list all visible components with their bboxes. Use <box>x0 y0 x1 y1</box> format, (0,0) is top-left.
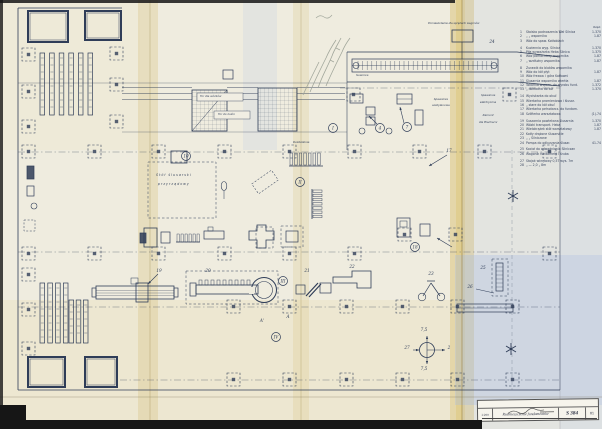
rack-strip <box>40 283 45 343</box>
label-track-2: Tor do kuźni <box>218 113 235 116</box>
scan-edge-left <box>0 0 3 410</box>
legend-row: 24Pompa do odkurzania ślusar.41-74 <box>520 141 601 145</box>
column-core <box>288 150 291 153</box>
column-core <box>418 150 421 153</box>
label-compressor-room: Pomieszczenie dla sprężarki wagonów <box>428 22 479 25</box>
legend-row: 18Szlifierka warsztatowa(1)-74 <box>520 112 601 116</box>
column-core <box>27 150 30 153</box>
column-core <box>27 90 30 93</box>
column-core <box>456 378 459 381</box>
column-core <box>232 378 235 381</box>
weld2-line4: dla Blacharni <box>479 120 497 124</box>
item-number-label: 24 <box>488 39 495 44</box>
label-welding-acetylene: Spawalnia acetylenowa <box>432 96 450 108</box>
scan-strip-bottom <box>24 420 482 429</box>
column-core <box>353 150 356 153</box>
column-core <box>27 53 30 56</box>
label-crane: Suwnica <box>356 74 368 78</box>
column-core <box>456 305 459 308</box>
legend-row: 3Wóz do spaw. Kotłoblach <box>520 39 601 43</box>
column-core <box>223 252 226 255</box>
column-core <box>483 150 486 153</box>
item-number-label: 27 <box>403 345 410 350</box>
column-core <box>508 93 511 96</box>
rack-strip <box>63 283 68 343</box>
machine-symbols-middle <box>24 151 452 248</box>
legend-item-text: „ wzdłużny wspornika <box>526 59 589 63</box>
legend-item-code <box>589 39 601 43</box>
label-switch-room: Rozdzielnia <box>293 141 309 145</box>
legend-header: Rzęd. <box>520 25 601 29</box>
circled-marker-label: 18 <box>412 245 418 250</box>
legend-item-code: 41-74 <box>589 141 601 145</box>
legend-item-text: Szlifierka warsztatowa <box>526 112 589 116</box>
title-block-signature <box>478 399 598 408</box>
equipment-markers: IIIIIIIV47101824192021222325262727,57,51… <box>156 39 495 371</box>
label-track-1: Tor dla wózków <box>200 95 221 98</box>
scan-edge-top <box>0 0 455 3</box>
rack-strip <box>83 300 88 343</box>
column-core <box>115 120 118 123</box>
column-core <box>157 252 160 255</box>
column-core <box>288 378 291 381</box>
column-core <box>288 252 291 255</box>
column-core <box>27 347 30 350</box>
weld2-line3: Remont <box>483 113 494 117</box>
loading-platforms <box>122 70 345 131</box>
column-core <box>511 305 514 308</box>
scanned-drawing-sheet: IIIIIIIV47101824192021222325262727,57,51… <box>0 0 602 429</box>
column-core <box>93 150 96 153</box>
column-core <box>548 252 551 255</box>
rack-strip <box>69 53 74 115</box>
column-core <box>345 378 348 381</box>
machine-symbols-top <box>350 94 423 134</box>
column-core <box>454 233 457 236</box>
column-core <box>345 305 348 308</box>
scan-line-under-title <box>482 418 597 419</box>
column-core <box>115 52 118 55</box>
legend-item-code: 1-370 <box>589 87 601 91</box>
legend-row: 26Wagonik fundament i śruba <box>520 152 601 156</box>
rack-strip <box>88 53 93 115</box>
floor-plan-drawing: IIIIIIIV47101824192021222325262727,57,51… <box>0 0 602 429</box>
column-core <box>288 305 291 308</box>
item-number-label: 22 <box>348 264 355 269</box>
machine-symbols-bottom <box>92 190 518 364</box>
item-number-label: 2 <box>447 345 451 350</box>
weld2-line1: Spawalnia <box>481 93 495 97</box>
hall-walls <box>18 8 560 390</box>
rack-strip <box>69 300 74 343</box>
column-core <box>352 93 355 96</box>
legend: Rzęd. 1Stoisko podnoszenia Wał Silnica1-… <box>520 25 601 167</box>
column-core <box>353 252 356 255</box>
item-number-label: 19 <box>156 268 162 273</box>
axis-lines <box>18 88 560 390</box>
label-bench: Stół ślusarski przyrządowy <box>156 171 192 188</box>
item-number-label: 7,5 <box>421 327 428 332</box>
legend-item-code <box>589 163 601 167</box>
item-number-label: 21 <box>303 268 309 273</box>
item-number-label: 20 <box>204 268 211 273</box>
weld2-line2: elektryczna <box>480 100 496 104</box>
legend-row: 28 „ — 2,0 „ 8m <box>520 163 601 167</box>
circled-marker-label: 4 <box>378 126 382 131</box>
rack-strip <box>40 53 45 115</box>
column-core <box>401 305 404 308</box>
column-core <box>511 378 514 381</box>
legend-row: 7 „ wzdłużny wspornika1-87 <box>520 59 601 63</box>
legend-item-text: „ — 2,0 „ 8m <box>526 163 589 167</box>
legend-item-text: Wóz do spaw. Kotłoblach <box>526 39 589 43</box>
column-core <box>115 83 118 86</box>
rack-strip <box>59 53 64 115</box>
scan-corner-bottom-left <box>0 405 26 429</box>
rack-strip <box>78 53 83 115</box>
circled-marker-label: III <box>280 279 286 284</box>
rack-strip <box>56 283 61 343</box>
label-bench-line2: przyrządowy <box>158 182 190 186</box>
rack-strip <box>50 53 55 115</box>
circled-marker-label: I <box>331 126 334 131</box>
column-core <box>93 252 96 255</box>
item-number-label: 17 <box>446 148 452 153</box>
weld1-line1: Spawalnia <box>434 97 448 101</box>
rack-strip <box>76 300 81 343</box>
weld1-line2: acetylenowa <box>432 103 450 107</box>
column-core <box>157 150 160 153</box>
legend-item-code: 1-87 <box>589 59 601 63</box>
item-number-label: 23 <box>427 271 434 276</box>
item-number-label: 25 <box>479 265 486 270</box>
circled-marker-label: 10 <box>183 154 189 159</box>
legend-row: 13 „ dokładna do kół1-370 <box>520 87 601 91</box>
legend-item-code <box>589 152 601 156</box>
item-number-label: 26 <box>466 284 473 289</box>
column-core <box>27 308 30 311</box>
label-welding-electric: Spawalnia elektryczna Remont dla Blachar… <box>479 92 497 126</box>
circled-marker-label: II <box>297 180 302 185</box>
circled-marker-label: IV <box>273 335 280 340</box>
legend-item-text: Pompa do odkurzania ślusar. <box>526 141 589 145</box>
legend-item-text: Wagonik fundament i śruba <box>526 152 589 156</box>
column-core <box>232 305 235 308</box>
item-number-label: A' <box>259 318 264 323</box>
column-core <box>27 252 30 255</box>
column-core <box>401 378 404 381</box>
column-core <box>27 125 30 128</box>
column-core <box>27 273 30 276</box>
column-core <box>403 233 406 236</box>
label-bench-line1: Stół ślusarski <box>156 173 192 177</box>
item-number-label: A <box>285 314 289 319</box>
legend-item-code: (1)-74 <box>589 112 601 116</box>
rack-strip <box>48 283 53 343</box>
circled-marker-label: 7 <box>406 125 409 130</box>
item-number-label: 7,5 <box>421 366 428 371</box>
column-core <box>223 150 226 153</box>
legend-item-text: „ dokładna do kół <box>526 87 589 91</box>
